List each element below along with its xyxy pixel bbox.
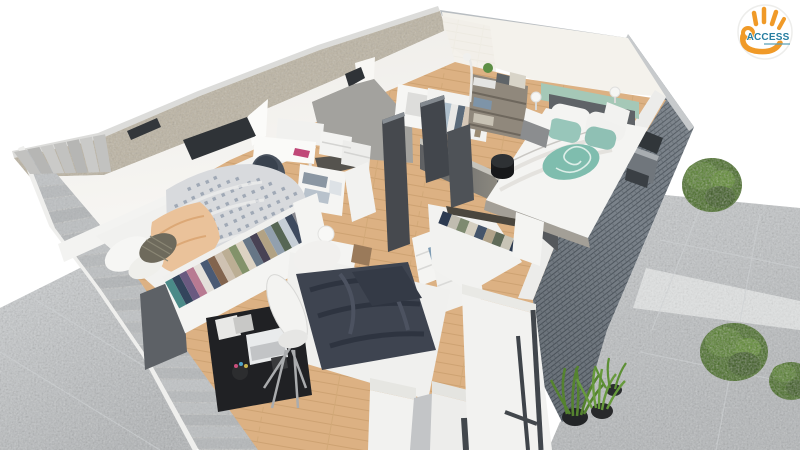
svg-text:ACCESS: ACCESS	[747, 32, 790, 43]
